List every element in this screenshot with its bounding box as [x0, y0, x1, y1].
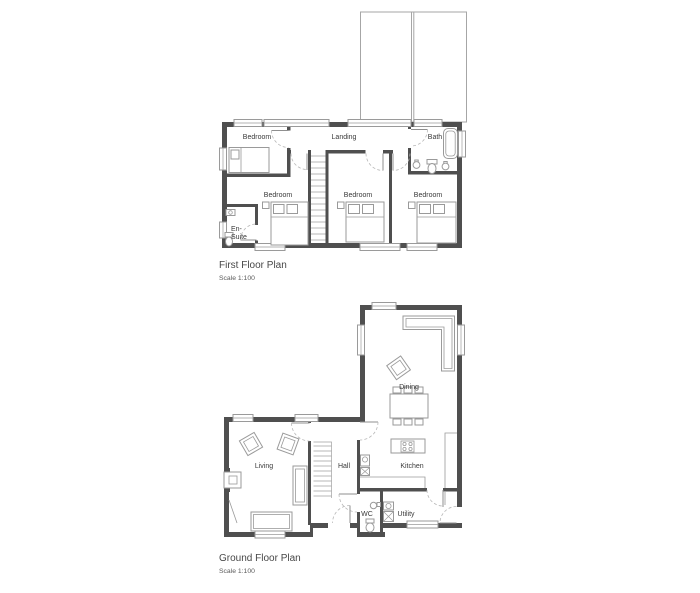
room-label-wc: WC — [361, 511, 373, 518]
bed-bottom-left — [263, 202, 309, 245]
bed-top-left — [229, 148, 269, 173]
washing-machine — [384, 512, 394, 522]
room-label-kitchen: Kitchen — [400, 463, 423, 470]
first-floor-plan: Bedroom Landing Bath Bedroom Bedroom Bed… — [219, 12, 467, 282]
first-floor-doors — [241, 130, 428, 241]
ground-floor-walls — [224, 305, 462, 537]
kitchen-island — [391, 439, 425, 453]
living-armchair-1 — [239, 432, 262, 455]
ground-floor-furniture — [224, 316, 457, 532]
first-floor-furniture — [225, 129, 458, 247]
utility-sink — [384, 502, 394, 510]
wc-basin — [370, 502, 380, 508]
bed-right — [409, 202, 457, 243]
roof-outline — [361, 12, 467, 122]
dining-table — [390, 387, 428, 425]
room-label-bath: Bath — [428, 134, 443, 141]
room-label-bedroom-middle: Bedroom — [344, 192, 373, 199]
room-label-bedroom-right: Bedroom — [414, 192, 443, 199]
bed-middle — [338, 202, 385, 242]
room-label-dining: Dining — [399, 384, 419, 391]
dining-armchair — [387, 356, 411, 380]
bath-basin — [413, 160, 420, 168]
room-label-ensuite-line1: En- — [231, 226, 243, 233]
ground-floor-caption: Ground Floor Plan Scale 1:100 — [219, 553, 301, 575]
drawing-sheet: Bedroom Landing Bath Bedroom Bedroom Bed… — [0, 0, 700, 593]
room-label-living: Living — [255, 463, 273, 470]
kitchen-sink — [361, 455, 370, 466]
room-label-landing: Landing — [332, 134, 357, 141]
bath-toilet — [427, 160, 437, 174]
living-armchair-2 — [277, 433, 299, 455]
ensuite-sink — [226, 210, 235, 216]
room-label-bedroom-top-left: Bedroom — [243, 134, 272, 141]
first-floor-scale: Scale 1:100 — [219, 275, 255, 282]
room-label-bedroom-left: Bedroom — [264, 192, 293, 199]
ground-floor-stairs — [314, 442, 332, 498]
bath-basin-2 — [442, 162, 449, 170]
room-label-utility: Utility — [397, 511, 415, 518]
bathtub — [444, 129, 458, 159]
corner-unit — [229, 500, 237, 523]
room-label-ensuite-line2: Suite — [231, 234, 247, 241]
corner-sofa — [403, 316, 455, 371]
sofa — [293, 466, 307, 505]
ground-floor-title: Ground Floor Plan — [219, 553, 301, 564]
floor-plans-drawing: Bedroom Landing Bath Bedroom Bedroom Bed… — [0, 0, 700, 593]
coffee-table — [251, 512, 292, 531]
first-floor-stairs — [311, 156, 326, 240]
fireplace — [224, 472, 241, 488]
wc-toilet — [366, 519, 374, 532]
first-floor-caption: First Floor Plan Scale 1:100 — [219, 260, 287, 282]
dishwasher — [361, 468, 370, 476]
ground-floor-plan: Dining Living Hall Kitchen WC Utility Gr… — [219, 303, 465, 576]
room-label-hall: Hall — [338, 463, 351, 470]
first-floor-title: First Floor Plan — [219, 260, 287, 271]
ground-floor-scale: Scale 1:100 — [219, 568, 255, 575]
